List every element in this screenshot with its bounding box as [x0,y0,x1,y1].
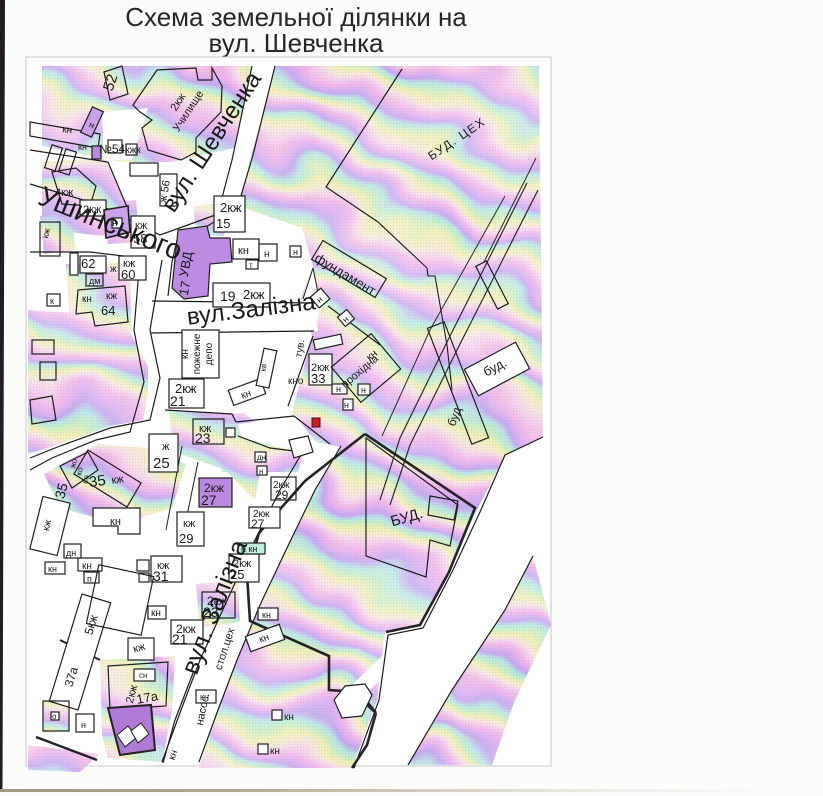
svg-text:35: 35 [88,472,107,491]
svg-text:к: к [50,296,54,306]
svg-text:кн: кн [200,692,209,702]
svg-text:депо: депо [204,342,215,365]
svg-text:кн: кн [284,712,294,723]
svg-text:21: 21 [170,393,186,409]
svg-text:н: н [336,384,341,394]
svg-text:27: 27 [201,492,217,508]
svg-text:25: 25 [153,455,170,472]
svg-text:о: о [52,712,57,721]
svg-text:62: 62 [81,256,95,271]
svg-text:н: н [264,249,270,260]
svg-text:дн: дн [66,548,76,558]
svg-text:29: 29 [275,488,289,502]
svg-text:сн: сн [139,671,147,680]
svg-text:кн: кн [48,564,57,574]
svg-text:кж: кж [183,518,196,530]
svg-text:н: н [259,467,263,476]
svg-text:64: 64 [101,303,115,318]
svg-text:кн: кн [82,294,92,305]
svg-text:23: 23 [195,430,211,446]
svg-text:н: н [361,385,366,395]
svg-text:н: н [81,720,86,730]
svg-text:15: 15 [216,216,230,231]
svg-text:ж: ж [162,441,170,453]
svg-text:60: 60 [121,267,135,282]
svg-text:кн: кн [78,142,87,152]
svg-text:17: 17 [176,280,193,297]
svg-text:кн: кн [180,349,191,359]
svg-text:пожежне: пожежне [192,333,203,374]
svg-text:кн: кн [82,561,92,572]
svg-text:н: н [344,400,349,410]
svg-text:п: п [87,574,92,584]
svg-text:кн: кн [270,746,280,757]
svg-text:кн: кн [151,608,161,619]
svg-text:кн: кн [238,245,249,257]
svg-text:29: 29 [179,531,193,546]
svg-text:31: 31 [153,568,169,584]
svg-text:кно: кно [288,376,304,387]
svg-text:33: 33 [311,371,325,386]
svg-text:кж: кж [111,473,125,487]
svg-text:н: н [293,247,298,257]
svg-text:кн: кн [110,516,121,528]
svg-text:кв: кв [258,363,268,372]
svg-text:2кж: 2кж [220,200,242,215]
svg-text:т: т [249,261,253,270]
svg-text:кн: кн [262,610,271,620]
svg-text:кн: кн [62,124,73,136]
svg-text:дн: дн [257,453,266,462]
svg-text:№54кжк: №54кжк [99,142,141,156]
svg-text:кж: кж [106,291,117,302]
svg-text:ж: ж [110,264,117,275]
svg-text:дм: дм [89,276,100,286]
svg-text:27: 27 [251,517,265,531]
